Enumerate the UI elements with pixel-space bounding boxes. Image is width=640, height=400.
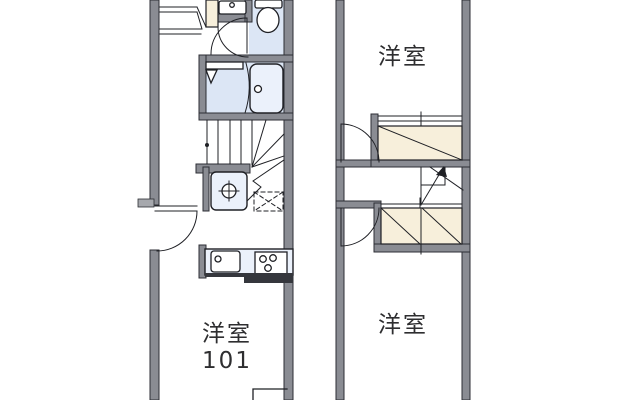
- bathtub-drain: [255, 86, 262, 93]
- wall-segment: [462, 0, 470, 400]
- stair-marker-dot: [205, 143, 209, 147]
- wall-segment: [203, 167, 209, 211]
- staircase-up-arrow-icon: [421, 166, 463, 205]
- room-label-2f-top: 洋室: [378, 44, 428, 70]
- washing-machine-pan-icon: [211, 172, 247, 210]
- room-label-2f-bottom: 洋室: [378, 312, 428, 338]
- refrigerator-space-icon: [254, 192, 283, 211]
- floor-plan-2f: 洋室 洋室: [336, 0, 470, 400]
- wall-segment: [371, 160, 470, 167]
- gas-stove-icon: [255, 252, 287, 274]
- wall-segment: [199, 55, 293, 62]
- door-panel: [206, 0, 218, 27]
- room-number-1f: 101: [202, 348, 252, 374]
- floor-plan-drawing: 洋室 101: [0, 0, 640, 400]
- counter-edge: [205, 273, 293, 277]
- wall-segment: [150, 0, 159, 205]
- counter-partition: [244, 277, 293, 283]
- wall-segment: [199, 113, 293, 120]
- wall-segment: [150, 250, 159, 400]
- wall-segment: [374, 244, 470, 252]
- toilet-bowl: [257, 8, 279, 33]
- window-icon: [160, 7, 206, 34]
- floor-plan-1f: 洋室 101: [138, 0, 293, 400]
- wall-segment: [199, 55, 206, 120]
- room-label-1f: 洋室: [202, 321, 252, 347]
- wall-segment: [336, 0, 344, 400]
- balcony-line: [253, 389, 287, 400]
- closet-icon-top: [378, 112, 462, 160]
- kitchen: [205, 249, 293, 283]
- faucet-icon: [215, 256, 221, 262]
- toilet-tank: [255, 0, 282, 8]
- door-icon-bottom-room: [341, 208, 379, 246]
- entrance-step: [138, 199, 154, 207]
- bath-shelf: [206, 62, 243, 69]
- entrance-door-icon: [155, 206, 197, 251]
- floor-plan-canvas: 洋室 101: [0, 0, 640, 400]
- washbasin-icon: [219, 1, 246, 14]
